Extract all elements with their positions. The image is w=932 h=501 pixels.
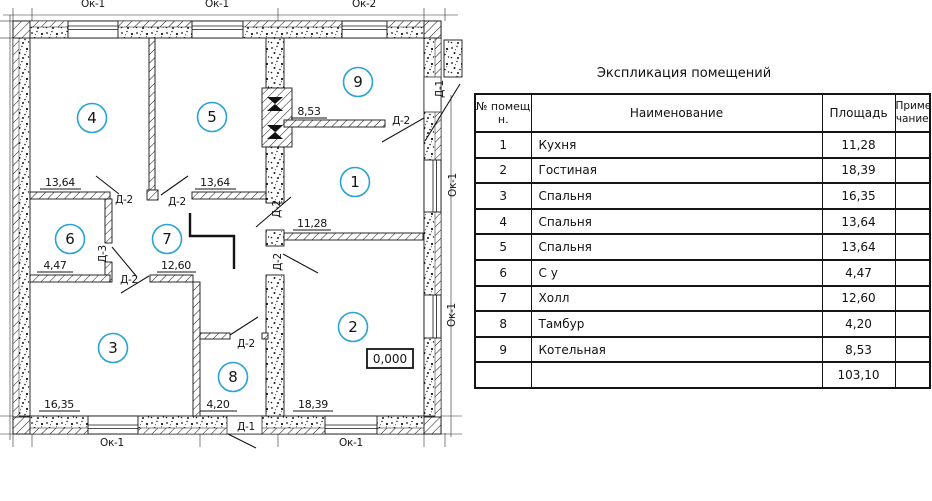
room-number-7: 7 — [162, 230, 172, 248]
dim-room4: 13,64 — [45, 176, 75, 189]
cell-room-area: 8,53 — [822, 337, 895, 363]
cell-room-note — [895, 209, 930, 235]
door-label-d1-entry: Д-1 — [237, 421, 255, 433]
area-dimensions: 13,64 13,64 8,53 11,28 4,47 12,60 16,35 … — [37, 105, 333, 411]
door-label-d2-room8: Д-2 — [237, 338, 255, 350]
cell-room-area: 13,64 — [822, 234, 895, 260]
cell-total-empty — [531, 362, 822, 388]
room-number-2: 2 — [348, 318, 358, 336]
dim-room1: 11,28 — [297, 217, 327, 230]
cell-room-area: 4,20 — [822, 311, 895, 337]
door-label-d2-room5: Д-2 — [168, 196, 186, 208]
cell-room-number: 5 — [475, 234, 531, 260]
table-row: 8 Тамбур 4,20 — [475, 311, 930, 337]
cell-room-number: 1 — [475, 132, 531, 158]
table-title: Экспликация помещений — [474, 66, 894, 81]
table-row: 2 Гостиная 18,39 — [475, 158, 930, 184]
window-label-bottom-1: Ок-1 — [100, 437, 124, 449]
cell-total-note — [895, 362, 930, 388]
cell-room-area: 18,39 — [822, 158, 895, 184]
hall-step-line — [190, 213, 234, 269]
cell-room-area: 4,47 — [822, 260, 895, 286]
room-number-8: 8 — [228, 368, 238, 386]
table-row: 4 Спальня 13,64 — [475, 209, 930, 235]
column-header-room-number: № помеще н. — [475, 94, 531, 132]
door-label-d2-room4: Д-2 — [115, 194, 133, 206]
table-row: 9 Котельная 8,53 — [475, 337, 930, 363]
table-row: 3 Спальня 16,35 — [475, 183, 930, 209]
dim-room5: 13,64 — [200, 176, 230, 189]
room-number-4: 4 — [87, 109, 97, 127]
window-label-top-3: Ок-2 — [352, 0, 376, 10]
dim-room8: 4,20 — [206, 398, 230, 411]
window-label-right-1: Ок-1 — [447, 173, 459, 197]
door-label-d2-room1: Д-2 — [271, 200, 283, 218]
cell-room-number: 4 — [475, 209, 531, 235]
table-header-row: № помеще н. Наименование Площадь Приме ч… — [475, 94, 930, 132]
elevation-mark: 0,000 — [367, 349, 413, 368]
cell-room-name: Спальня — [531, 209, 822, 235]
room-number-1: 1 — [350, 173, 360, 191]
elevation-value: 0,000 — [373, 352, 407, 366]
cell-room-area: 12,60 — [822, 286, 895, 312]
room-number-9: 9 — [353, 73, 363, 91]
cell-room-name: Кухня — [531, 132, 822, 158]
door-label-d1-right: Д-1 — [434, 80, 446, 98]
window-label-bottom-2: Ок-1 — [339, 437, 363, 449]
table-row: 7 Холл 12,60 — [475, 286, 930, 312]
room-number-6: 6 — [65, 230, 75, 248]
cell-room-number: 6 — [475, 260, 531, 286]
cell-room-area: 16,35 — [822, 183, 895, 209]
table-row: 6 С у 4,47 — [475, 260, 930, 286]
column-header-area: Площадь — [822, 94, 895, 132]
cell-room-name: Котельная — [531, 337, 822, 363]
cell-room-note — [895, 132, 930, 158]
cell-room-name: Спальня — [531, 183, 822, 209]
table-row: 1 Кухня 11,28 — [475, 132, 930, 158]
dim-room7: 12,60 — [161, 259, 191, 272]
cell-room-number: 3 — [475, 183, 531, 209]
cell-room-note — [895, 260, 930, 286]
window-label-top-2: Ок-1 — [205, 0, 229, 10]
cell-room-name: Тамбур — [531, 311, 822, 337]
cell-room-note — [895, 311, 930, 337]
floor-plan-drawing: 1 2 3 4 5 6 7 8 9 13,64 13,64 8,53 11,28… — [0, 0, 466, 460]
screenshot-canvas: 1 2 3 4 5 6 7 8 9 13,64 13,64 8,53 11,28… — [0, 0, 932, 501]
cell-room-area: 11,28 — [822, 132, 895, 158]
explication-table: № помеще н. Наименование Площадь Приме ч… — [474, 93, 931, 389]
dim-room2: 18,39 — [298, 398, 328, 411]
door-label-d2-room9: Д-2 — [392, 115, 410, 127]
column-header-note-line1: Приме — [896, 100, 931, 112]
cell-room-note — [895, 286, 930, 312]
door-label-d2-room3: Д-2 — [120, 274, 138, 286]
column-header-room-number-line2: н. — [498, 113, 509, 126]
door-label-d2-room2: Д-2 — [272, 253, 284, 271]
cell-room-note — [895, 158, 930, 184]
cell-total-empty — [475, 362, 531, 388]
window-label-right-2: Ок-1 — [446, 303, 458, 327]
window-label-top-1: Ок-1 — [81, 0, 105, 10]
cell-room-number: 8 — [475, 311, 531, 337]
table-total-row: 103,10 — [475, 362, 930, 388]
column-header-note: Приме чание — [895, 94, 930, 132]
cell-room-number: 9 — [475, 337, 531, 363]
cell-room-area: 13,64 — [822, 209, 895, 235]
table-row: 5 Спальня 13,64 — [475, 234, 930, 260]
windows — [68, 21, 441, 434]
cell-room-name: Гостиная — [531, 158, 822, 184]
cell-room-note — [895, 234, 930, 260]
door-label-d3: Д-3 — [97, 245, 109, 263]
cell-room-name: Холл — [531, 286, 822, 312]
column-header-note-line2: чание — [896, 113, 929, 125]
cell-total-area: 103,10 — [822, 362, 895, 388]
cell-room-note — [895, 337, 930, 363]
room-number-3: 3 — [108, 339, 118, 357]
dim-room9: 8,53 — [297, 105, 321, 118]
cell-room-number: 7 — [475, 286, 531, 312]
cell-room-number: 2 — [475, 158, 531, 184]
column-header-room-number-line1: № помеще — [476, 100, 531, 113]
dim-room6: 4,47 — [43, 259, 67, 272]
cell-room-note — [895, 183, 930, 209]
cell-room-name: Спальня — [531, 234, 822, 260]
dim-room3: 16,35 — [44, 398, 74, 411]
column-header-name: Наименование — [531, 94, 822, 132]
room-number-5: 5 — [207, 108, 217, 126]
cell-room-name: С у — [531, 260, 822, 286]
